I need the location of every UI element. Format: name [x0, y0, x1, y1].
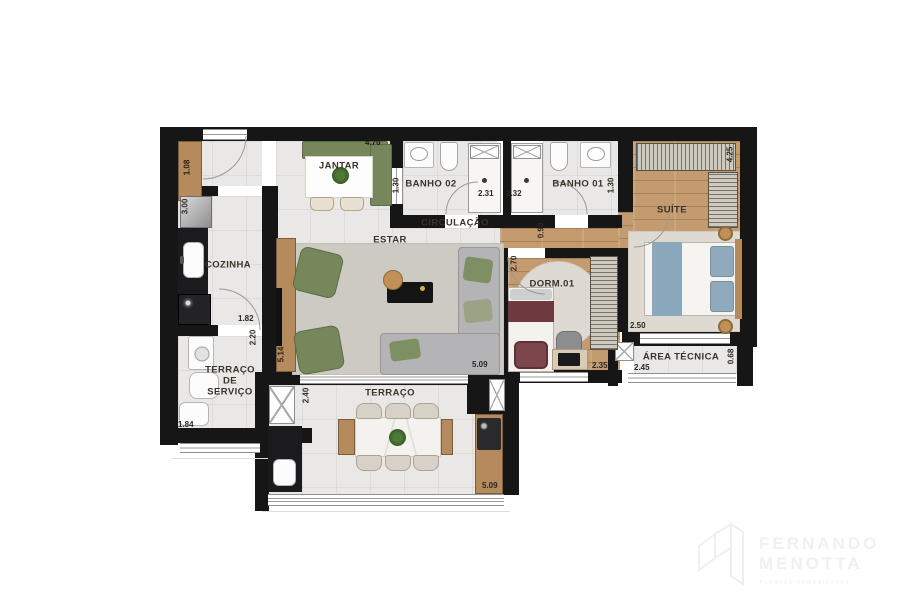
dim-dorm-left: 2.70	[510, 247, 519, 281]
watermark-name-line2: MENOTTA	[759, 554, 863, 574]
dim-banho02-left: 1.30	[392, 169, 401, 203]
room-label-cozinha: COZINHA	[205, 260, 251, 271]
room-label-terraco: TERRAÇO	[365, 388, 415, 399]
dim-terraco-left: 2.40	[302, 379, 311, 413]
watermark-tagline: PLANTAS HUMANIZADAS	[760, 580, 850, 586]
dim-estar-left: 5.14	[277, 338, 286, 372]
door-swing-arcs	[0, 0, 900, 600]
room-label-banho02: BANHO 02	[405, 179, 456, 190]
room-label-terraco-servico: TERRAÇO DE SERVIÇO	[205, 365, 255, 398]
dim-suite-bottom: 2.50	[630, 321, 646, 330]
dim-dorm-door: 0.90	[537, 214, 546, 248]
room-label-terraco-servico-line3: SERVIÇO	[205, 387, 255, 398]
dim-suite-right: 4.25	[726, 138, 735, 172]
dim-jantar-top: 4.70	[365, 138, 381, 147]
room-label-banho01: BANHO 01	[552, 179, 603, 190]
dim-banho02-bottom: 2.31	[478, 189, 494, 198]
room-label-terraco-servico-line1: TERRAÇO	[205, 365, 255, 376]
dim-entry-cabinet: 1.08	[183, 151, 192, 185]
dim-banho01-right: 1.30	[607, 169, 616, 203]
watermark: FERNANDO MENOTTA PLANTAS HUMANIZADAS	[695, 520, 895, 595]
floorplan-canvas: JANTAR BANHO 02 BANHO 01 SUÍTE CIRCULAÇÃ…	[0, 0, 900, 600]
room-label-estar: ESTAR	[373, 235, 407, 246]
room-label-area-tecnica: ÁREA TÉCNICA	[643, 352, 719, 363]
dim-area-tecnica-bottom: 2.45	[634, 363, 650, 372]
dim-area-tecnica-right: 0.68	[727, 340, 736, 374]
room-label-dorm01: DORM.01	[529, 279, 574, 290]
room-label-suite: SUÍTE	[657, 205, 687, 216]
watermark-name-line1: FERNANDO	[759, 534, 879, 554]
dim-cozinha-top: 3.00	[181, 190, 190, 224]
dim-estar-bottom: 5.09	[472, 360, 488, 369]
dim-banho01-bottom: 2.32	[506, 189, 522, 198]
room-label-terraco-servico-line2: DE	[205, 376, 255, 387]
dim-cozinha-wall: 2.20	[249, 321, 258, 355]
watermark-logo-icon	[695, 522, 753, 592]
dim-servico-bottom: 1.84	[178, 420, 194, 429]
dim-dorm-bottom: 2.35	[592, 361, 608, 370]
room-label-circulacao: CIRCULAÇÃO	[421, 218, 489, 229]
room-label-jantar: JANTAR	[319, 161, 359, 172]
dim-terraco-bottom: 5.09	[482, 481, 498, 490]
